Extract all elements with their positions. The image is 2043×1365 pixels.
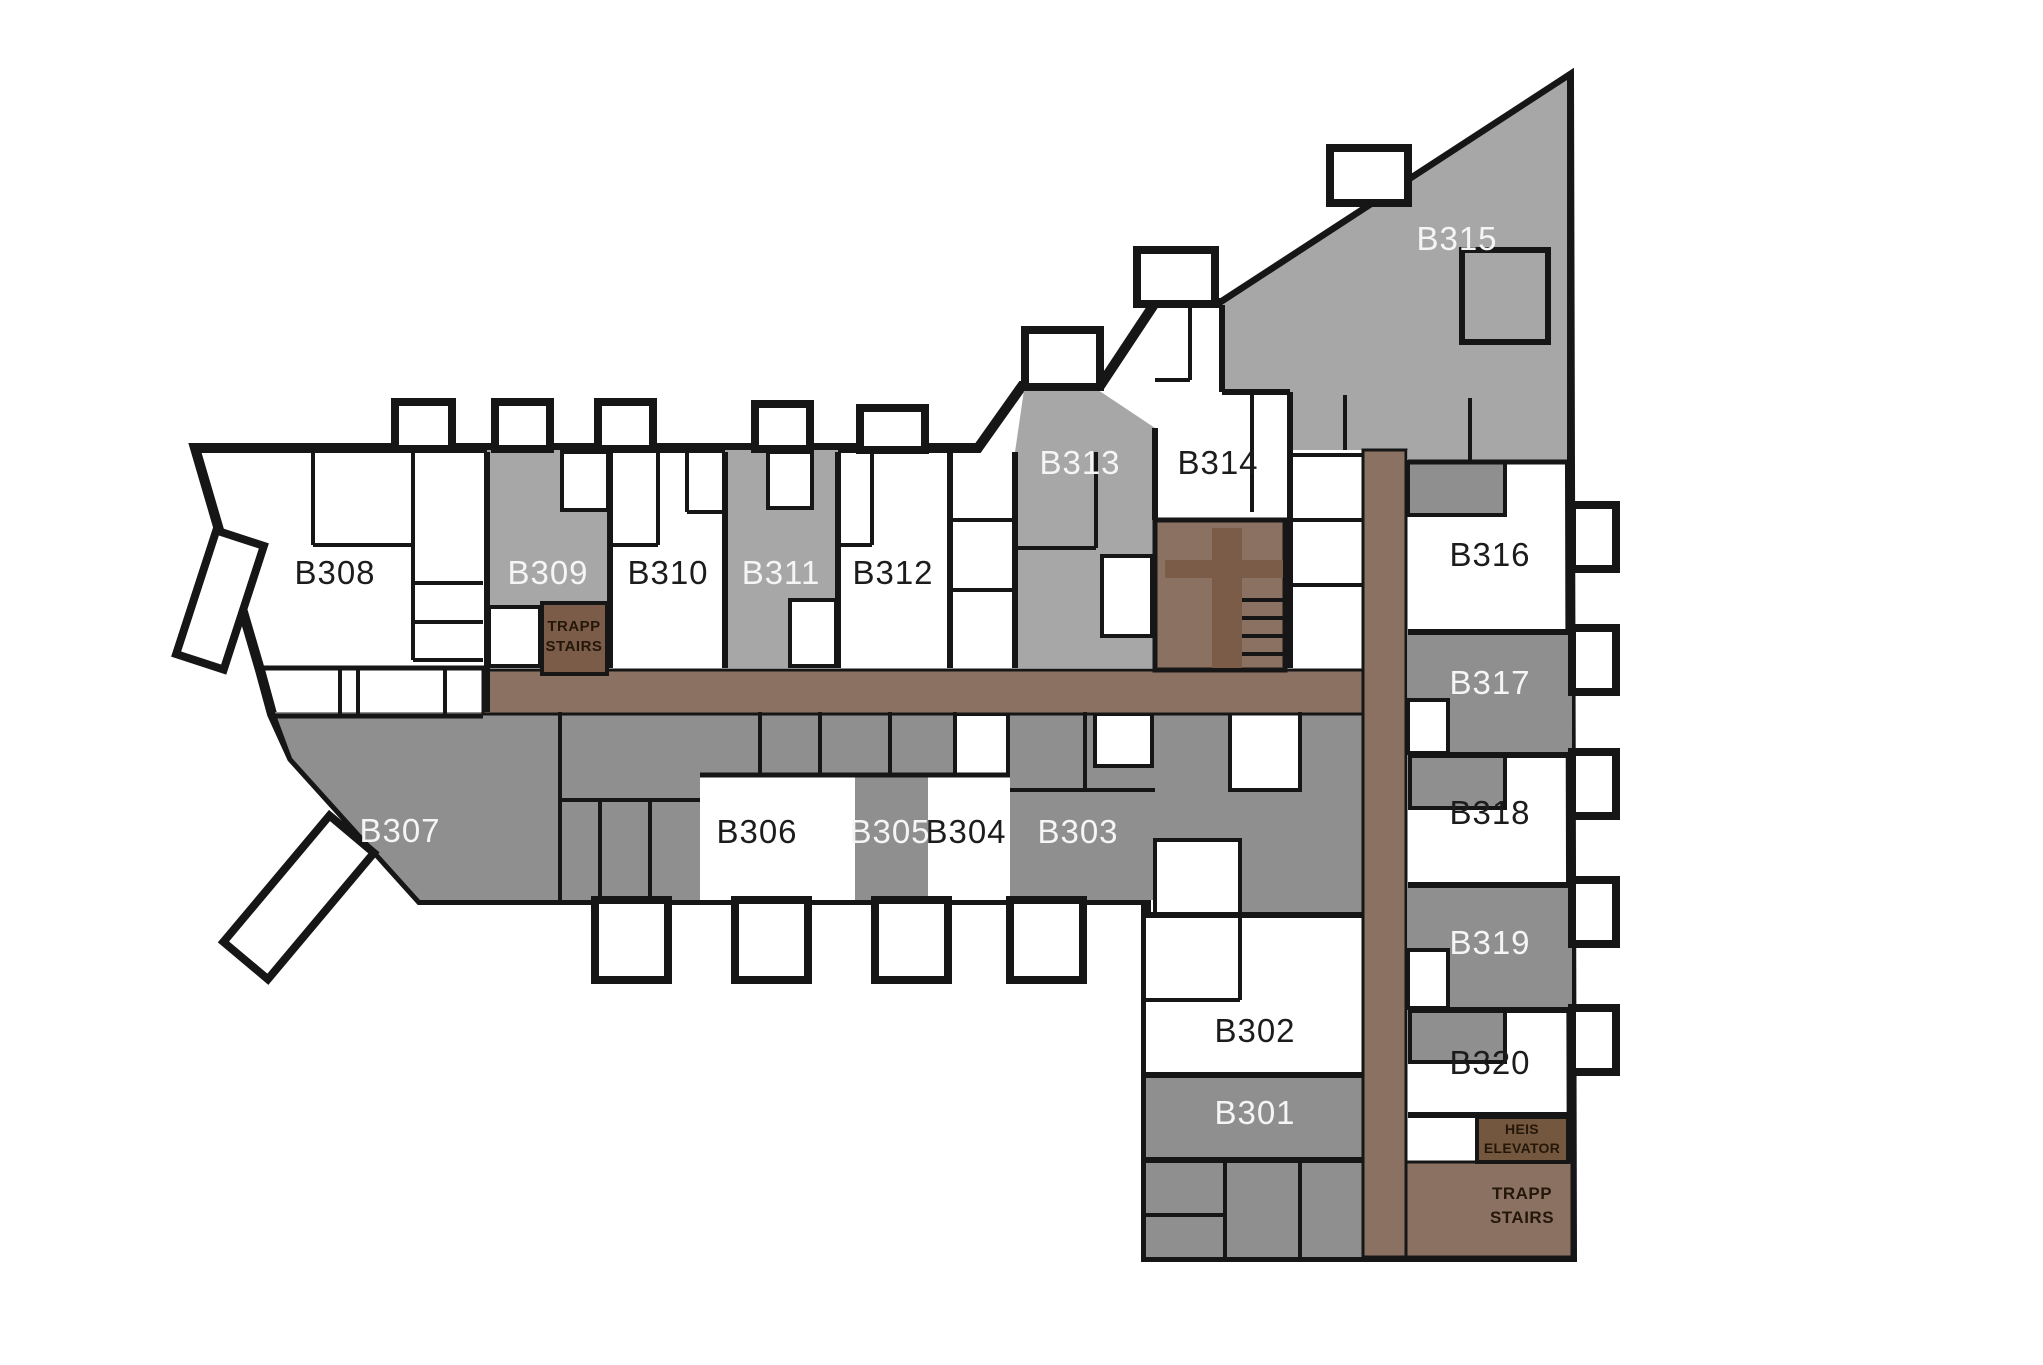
room-label-b302: B302	[1214, 1012, 1295, 1049]
corridor-vertical	[1363, 450, 1406, 1257]
balcony	[735, 900, 808, 980]
floorplan-page: B308 B310 B312 B314 B316 B318 B320 B306 …	[0, 0, 2043, 1365]
balcony	[495, 402, 550, 449]
stairs-lower-label-line2: STAIRS	[1490, 1208, 1554, 1227]
balcony	[1010, 900, 1083, 980]
elevator-label-line1: HEIS	[1505, 1121, 1539, 1137]
pocket	[768, 452, 812, 508]
room-label-b311: B311	[742, 554, 821, 591]
balcony	[1572, 1008, 1616, 1072]
stairs-lower-label-line1: TRAPP	[1492, 1184, 1552, 1203]
balcony	[860, 408, 925, 450]
pocket	[1155, 840, 1240, 915]
balcony	[598, 402, 653, 449]
stair-flight	[1212, 528, 1242, 668]
room-label-b303: B303	[1037, 813, 1118, 850]
balcony	[1572, 880, 1616, 944]
room-label-b317: B317	[1449, 664, 1530, 701]
elevator-label-line2: ELEVATOR	[1484, 1140, 1560, 1156]
balcony	[1330, 148, 1408, 203]
room-label-b308: B308	[294, 554, 375, 591]
balcony	[875, 900, 948, 980]
room-label-b313: B313	[1039, 444, 1120, 481]
pocket	[1230, 712, 1300, 790]
stair-landing	[1165, 560, 1283, 578]
room-label-b314: B314	[1177, 444, 1258, 481]
room-label-b310: B310	[627, 554, 708, 591]
room-label-b306: B306	[716, 813, 797, 850]
room-label-b315: B315	[1416, 220, 1497, 257]
balcony	[1025, 330, 1100, 387]
room-label-b312: B312	[852, 554, 933, 591]
floorplan-canvas: B308 B310 B312 B314 B316 B318 B320 B306 …	[0, 0, 2043, 1365]
pocket	[955, 714, 1008, 775]
room-label-b309: B309	[507, 554, 588, 591]
pocket	[790, 600, 836, 666]
room-b302	[1146, 915, 1363, 1075]
room-label-b301: B301	[1214, 1094, 1295, 1131]
stairs-upper-label-line2: STAIRS	[546, 638, 603, 655]
room-label-b305: B305	[849, 813, 930, 850]
room-label-b319: B319	[1449, 924, 1530, 961]
stairs-upper-label-line1: TRAPP	[547, 618, 600, 635]
pocket	[1408, 950, 1448, 1008]
balcony	[1572, 628, 1616, 692]
room-label-b316: B316	[1449, 536, 1530, 573]
service-rooms-bottom	[1146, 1160, 1363, 1257]
balcony	[1572, 752, 1616, 816]
pocket	[1408, 700, 1448, 753]
balcony	[755, 404, 810, 449]
room-label-b320: B320	[1449, 1044, 1530, 1081]
balcony	[595, 900, 668, 980]
room-label-b307: B307	[359, 812, 440, 849]
pocket	[1102, 556, 1152, 636]
balcony	[223, 816, 373, 980]
plan-shapes: B308 B310 B312 B314 B316 B318 B320 B306 …	[176, 77, 1616, 1257]
balcony	[1137, 250, 1215, 304]
room-label-b318: B318	[1449, 794, 1530, 831]
pocket	[1095, 714, 1152, 766]
pocket	[489, 607, 540, 666]
pocket	[562, 452, 608, 510]
room-label-b304: B304	[925, 813, 1006, 850]
corridor-horizontal	[483, 670, 1406, 714]
service-box-b316	[1408, 462, 1505, 515]
balcony	[1572, 505, 1616, 569]
balcony	[395, 402, 452, 449]
